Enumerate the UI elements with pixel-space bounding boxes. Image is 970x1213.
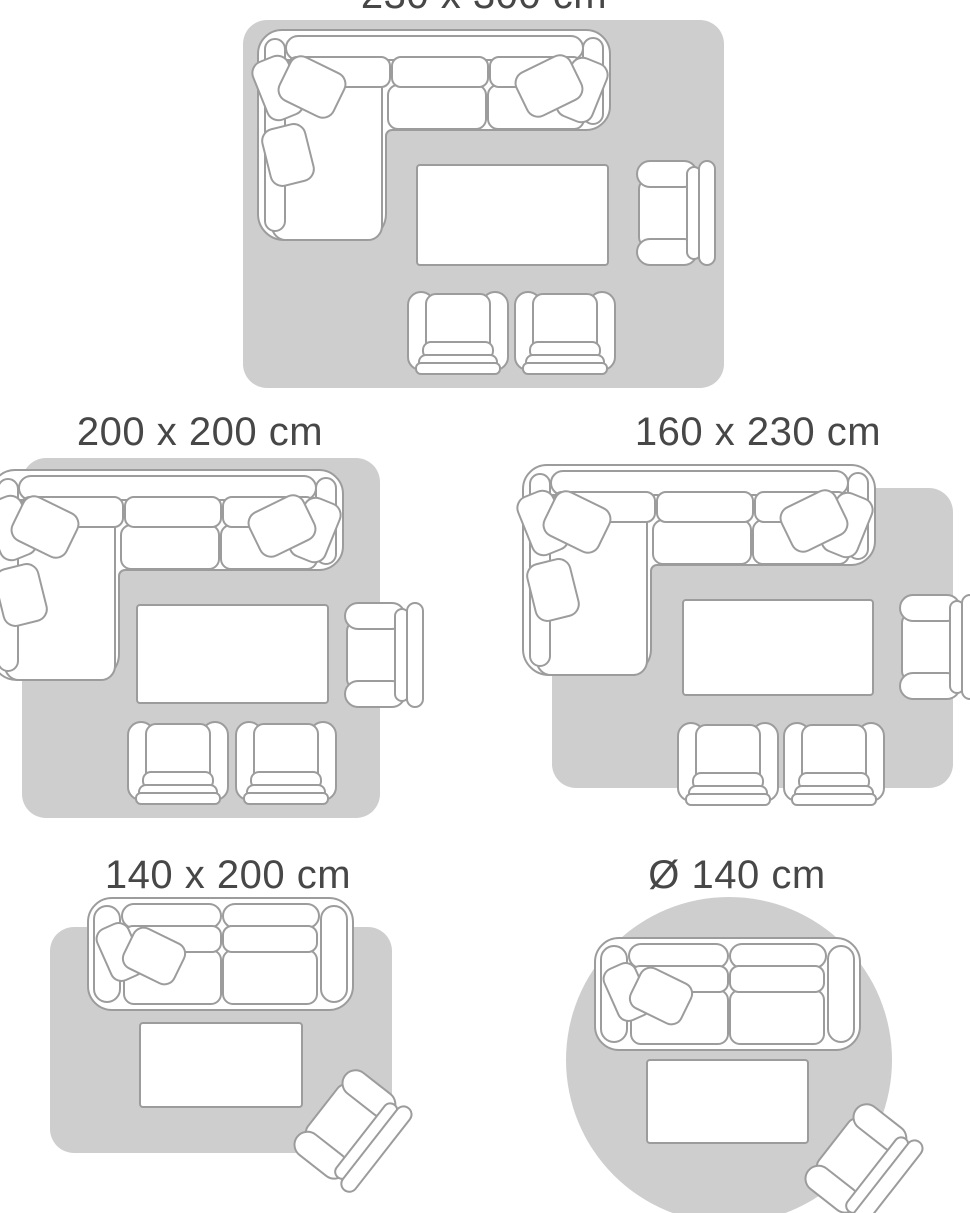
diagram-160x230: [514, 465, 970, 805]
size-label-230x300: 230 x 300 cm: [361, 0, 607, 15]
lounge-chair: [408, 292, 508, 374]
two-seater-sofa: [595, 938, 860, 1050]
coffee-table: [647, 1060, 808, 1143]
diagram-140x200: [50, 898, 415, 1195]
lounge-chair: [128, 722, 228, 804]
size-label-round-140: Ø 140 cm: [648, 855, 825, 895]
rug-size-guide: 230 x 300 cm 200 x 200 cm 160 x 230 cm 1…: [0, 0, 970, 1213]
armchair: [345, 603, 423, 707]
diagram-230x300: [243, 20, 724, 388]
diagram-round-140: [566, 897, 926, 1213]
size-label-160x230: 160 x 230 cm: [635, 412, 881, 452]
size-guide-illustrations: [0, 0, 970, 1213]
lounge-chair: [784, 723, 884, 805]
lounge-chair: [515, 292, 615, 374]
two-seater-sofa: [88, 898, 353, 1010]
coffee-table: [137, 605, 328, 703]
diagram-200x200: [0, 458, 423, 818]
lounge-chair: [236, 722, 336, 804]
armchair: [637, 161, 715, 265]
coffee-table: [140, 1023, 302, 1107]
armchair: [900, 595, 970, 699]
size-label-140x200: 140 x 200 cm: [105, 855, 351, 895]
size-label-200x200: 200 x 200 cm: [77, 412, 323, 452]
coffee-table: [683, 600, 873, 695]
lounge-chair: [678, 723, 778, 805]
coffee-table: [417, 165, 608, 265]
